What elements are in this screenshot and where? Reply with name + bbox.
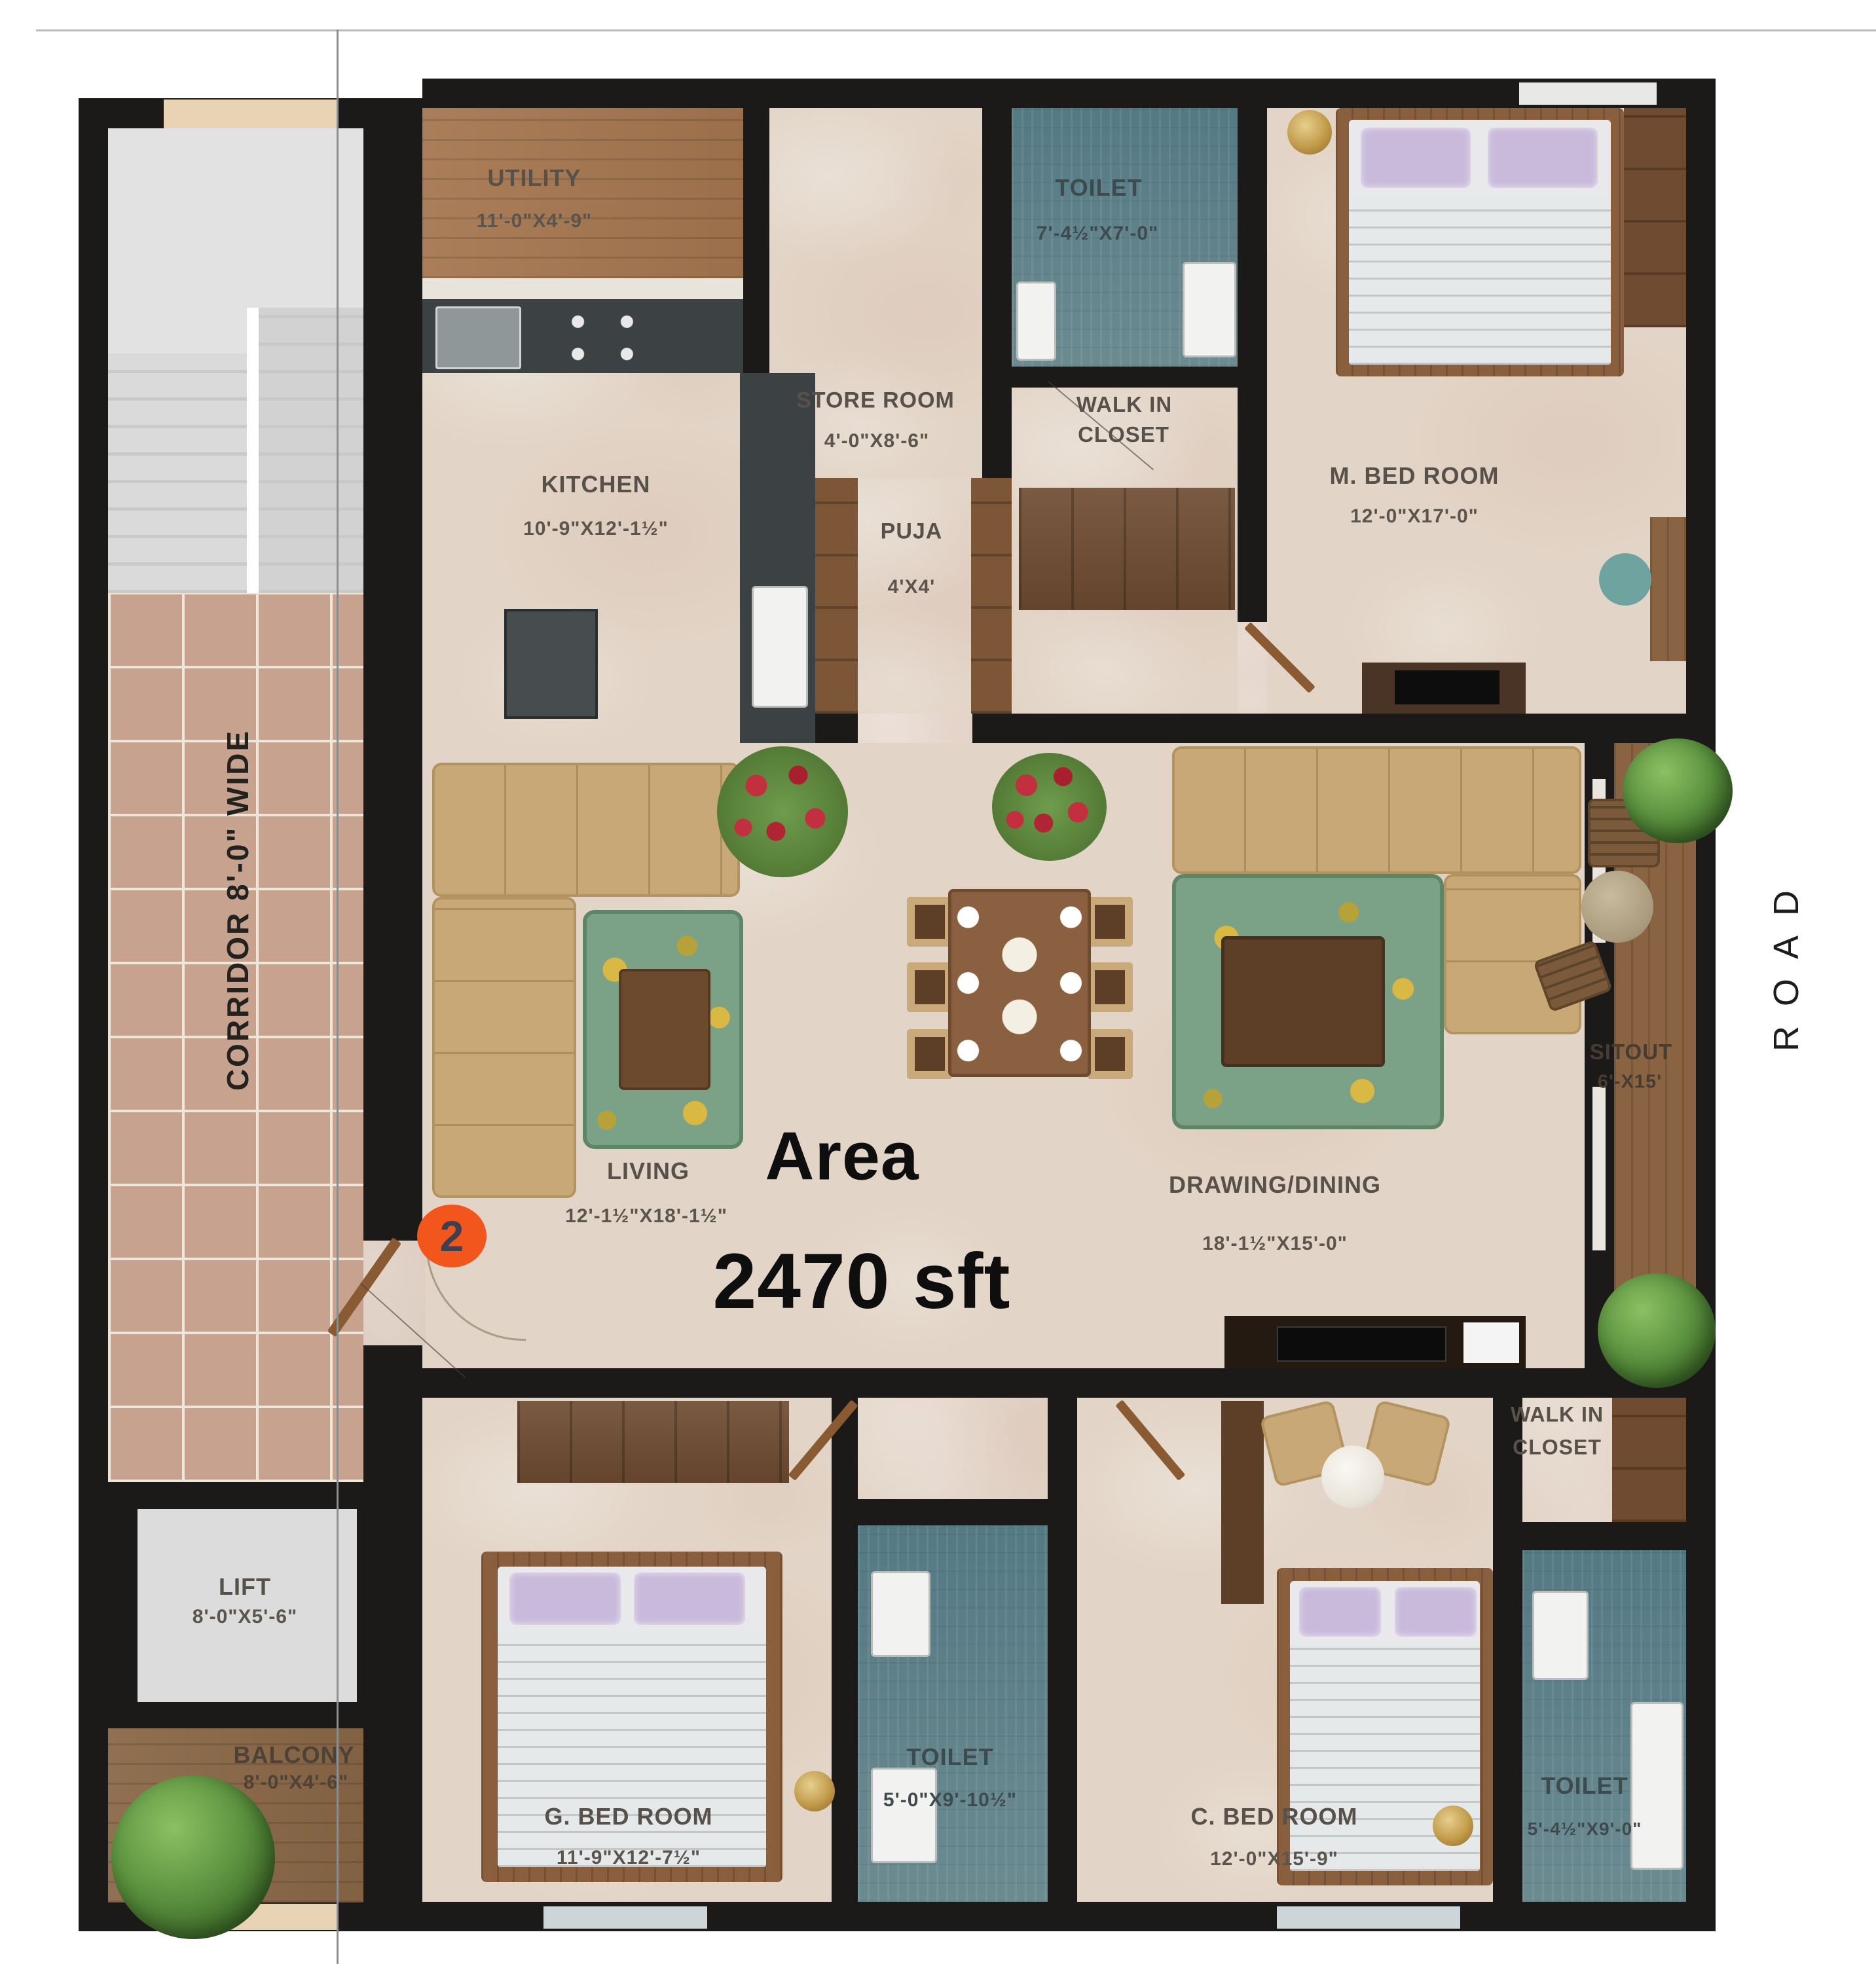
g-bed-dims: 11'-9"X12'-7½" — [557, 1847, 701, 1869]
area-title: Area — [765, 1118, 919, 1196]
dining-chair-r2 — [1087, 962, 1133, 1012]
living-flower-pot — [717, 746, 848, 877]
guide-vertical-line — [337, 29, 339, 1964]
lift-dims: 8'-0"X5'-6" — [193, 1606, 297, 1628]
sitout-plant-bottom — [1598, 1273, 1716, 1388]
puja-door-left — [815, 478, 858, 714]
living-dims: 12'-1½"X18'-1½" — [565, 1205, 727, 1227]
living-label: LIVING — [607, 1157, 690, 1185]
toilet-master-sink — [1183, 262, 1236, 357]
guide-horizontal-line — [36, 29, 1876, 31]
stair-flight-right — [259, 308, 363, 593]
stair-flight-left — [108, 354, 247, 593]
living-sofa-top — [432, 763, 740, 897]
drawing-coffee-table — [1221, 936, 1385, 1067]
dining-plates — [948, 889, 1091, 1077]
m-bed-label: M. BED ROOM — [1330, 462, 1499, 490]
kitchen-sink-top — [435, 306, 521, 369]
g-bed-label: G. BED ROOM — [544, 1803, 712, 1830]
closet-c-line2: CLOSET — [1513, 1436, 1602, 1460]
unit-number: 2 — [440, 1211, 464, 1261]
closet-master-line1: WALK IN — [1076, 392, 1172, 417]
sitout-dims: 6'-X15' — [1598, 1072, 1662, 1093]
g-bed-stool — [794, 1771, 835, 1811]
m-bed-dims: 12'-0"X17'-0" — [1350, 505, 1479, 528]
m-bed-pillow-left — [1361, 128, 1471, 188]
kitchen-label: KITCHEN — [542, 471, 651, 498]
unit-number-badge: 2 — [417, 1205, 487, 1267]
toilet-c-label: TOILET — [1541, 1772, 1628, 1800]
dining-chair-r3 — [1087, 1029, 1133, 1079]
kitchen-sink-right — [752, 586, 808, 708]
g-bed-duvet — [498, 1630, 766, 1867]
toilet-g-dims: 5'-0"X9'-10½" — [883, 1789, 1017, 1811]
tv-console-paper — [1463, 1322, 1519, 1363]
puja-door-right — [971, 478, 1015, 714]
hall-opening — [858, 714, 972, 743]
puja-label: PUJA — [881, 519, 943, 545]
balcony-plant — [111, 1775, 275, 1939]
toilet-c-wc — [1532, 1591, 1589, 1680]
utility-label: UTILITY — [488, 164, 581, 192]
m-bed-wardrobe — [1624, 108, 1686, 327]
m-bed-window — [1519, 82, 1657, 105]
floor-plan: CORRIDOR 8'-0" WIDE LIFT 8'-0"X5'-6" BAL… — [0, 0, 1876, 1964]
g-bed-pillow-left — [509, 1573, 621, 1625]
g-toilet-vestibule — [858, 1398, 1048, 1499]
m-bed-desk — [1650, 517, 1686, 661]
toilet-g-label: TOILET — [906, 1743, 993, 1771]
dining-flower-pot — [992, 753, 1107, 861]
m-bed-tv — [1395, 670, 1499, 704]
lift-label: LIFT — [219, 1573, 271, 1601]
stair-divider — [247, 308, 259, 593]
toilet-g-sink — [871, 1768, 937, 1863]
sitout-label: SITOUT — [1590, 1040, 1672, 1064]
stove-burners-icon — [547, 302, 658, 371]
sitout-round-table — [1581, 871, 1653, 943]
closet-master-wardrobe — [1019, 488, 1235, 610]
toilet-master-dims: 7'-4½"X7'-0" — [1037, 223, 1158, 245]
c-bed-pillow-left — [1299, 1587, 1381, 1637]
puja-dims: 4'X4' — [888, 576, 936, 598]
store-label: STORE ROOM — [796, 388, 955, 414]
drawing-sofa-top — [1172, 746, 1581, 874]
toilet-c-dims: 5'-4½"X9'-0" — [1528, 1819, 1642, 1840]
road-label: ROAD — [1766, 871, 1807, 1051]
utility-dims: 11'-0"X4'-9" — [477, 210, 592, 232]
g-bed-pillow-right — [634, 1573, 745, 1625]
toilet-g-wc — [871, 1571, 930, 1657]
g-bed-window — [543, 1906, 707, 1929]
sitout-plant-top — [1623, 738, 1733, 843]
closet-c-line1: WALK IN — [1511, 1403, 1604, 1427]
area-value: 2470 sft — [713, 1236, 1011, 1326]
c-bed-stool — [1433, 1806, 1473, 1846]
toilet-master-label: TOILET — [1055, 174, 1142, 202]
fridge — [504, 609, 598, 719]
dining-chair-l3 — [907, 1029, 953, 1079]
store-dims: 4'-0"X8'-6" — [824, 430, 929, 452]
room-utility — [422, 108, 743, 278]
m-bed-wall-clock-icon — [1287, 110, 1332, 155]
dining-chair-l2 — [907, 962, 953, 1012]
c-bed-pillow-right — [1395, 1587, 1477, 1637]
c-bed-side-table — [1321, 1446, 1384, 1508]
kitchen-dims: 10'-9"X12'-1½" — [523, 518, 669, 540]
c-bed-dims: 12'-0"X15'-9" — [1210, 1848, 1338, 1870]
balcony-dims: 8'-0"X4'-6" — [244, 1772, 348, 1794]
m-bed-chair — [1599, 553, 1651, 606]
c-bed-window — [1277, 1906, 1460, 1929]
closet-c-wardrobe — [1612, 1398, 1686, 1522]
toilet-c-tub — [1630, 1702, 1683, 1870]
drawing-label: DRAWING/DINING — [1169, 1171, 1381, 1199]
closet-master-line2: CLOSET — [1078, 422, 1169, 447]
c-bed-label: C. BED ROOM — [1190, 1803, 1357, 1830]
kitchen-counter-edge — [422, 278, 743, 299]
living-sofa-arm — [432, 897, 576, 1198]
tv-screen — [1277, 1326, 1446, 1362]
c-bed-desk — [1221, 1401, 1264, 1604]
living-coffee-table — [619, 969, 710, 1090]
dining-chair-l1 — [907, 897, 953, 947]
drawing-dims: 18'-1½"X15'-0" — [1202, 1233, 1348, 1255]
dining-chair-r1 — [1087, 897, 1133, 947]
corridor-label: CORRIDOR 8'-0" WIDE — [220, 729, 255, 1091]
m-bed-duvet — [1349, 196, 1611, 365]
sitout-door-slit-2 — [1592, 1087, 1606, 1250]
m-bed-pillow-right — [1488, 128, 1598, 188]
g-bed-wardrobe — [517, 1401, 789, 1483]
toilet-master-wc — [1016, 282, 1056, 361]
stairs-window — [164, 100, 337, 128]
